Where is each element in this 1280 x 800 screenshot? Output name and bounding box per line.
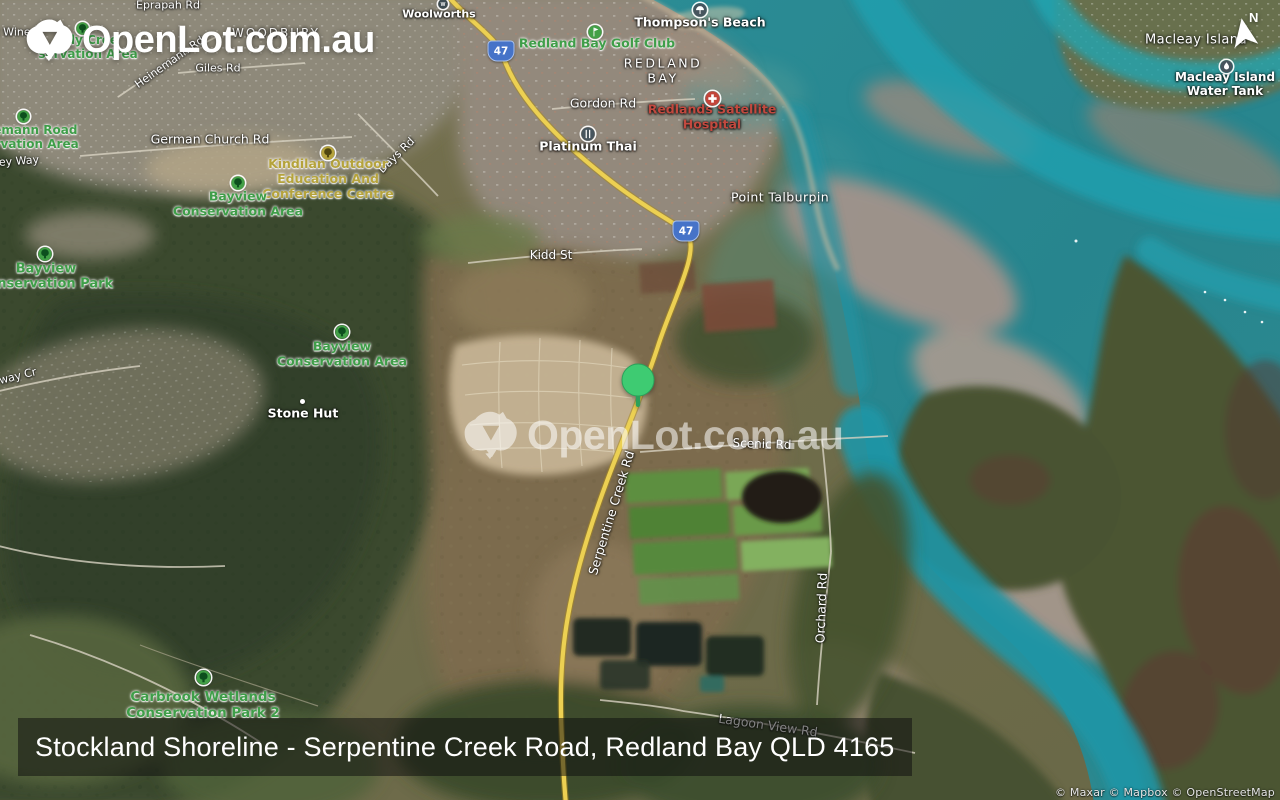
highway-shield-47-1: 47 (488, 41, 515, 62)
golf-icon (588, 25, 602, 39)
svg-text:W: W (441, 2, 446, 8)
openlot-watermark: OpenLot.com.au (462, 410, 843, 460)
park-icon (17, 110, 30, 123)
openlot-logo: OpenLot.com.au (24, 18, 375, 62)
highway-shield-47-2: 47 (673, 221, 700, 242)
openlot-australia-icon (462, 410, 518, 460)
park-icon (335, 325, 349, 339)
compass-control[interactable]: N (1224, 8, 1268, 58)
kindilan-icon (321, 146, 335, 160)
hospital-icon (705, 91, 720, 106)
shop-icon: W (438, 0, 448, 9)
compass-needle-icon (1224, 8, 1268, 58)
map-canvas[interactable]: Eprapah Rdt WineWOODBURYGiles RdHeineman… (0, 0, 1280, 800)
beach-icon (693, 3, 707, 17)
compass-north-label: N (1249, 10, 1258, 25)
dot-icon (300, 399, 305, 404)
water-icon (1220, 60, 1233, 73)
listing-title-bar: Stockland Shoreline - Serpentine Creek R… (18, 718, 912, 776)
openlot-logo-text: OpenLot.com.au (82, 19, 375, 62)
restaurant-icon (581, 127, 595, 141)
park-icon (231, 176, 245, 190)
property-pin-icon[interactable] (621, 363, 655, 411)
park-icon (196, 670, 211, 685)
park-icon (38, 247, 52, 261)
openlot-watermark-text: OpenLot.com.au (527, 412, 843, 459)
openlot-australia-icon (24, 18, 74, 62)
listing-title-text: Stockland Shoreline - Serpentine Creek R… (35, 732, 895, 763)
map-attribution[interactable]: © Maxar © Mapbox © OpenStreetMap (1055, 786, 1275, 799)
